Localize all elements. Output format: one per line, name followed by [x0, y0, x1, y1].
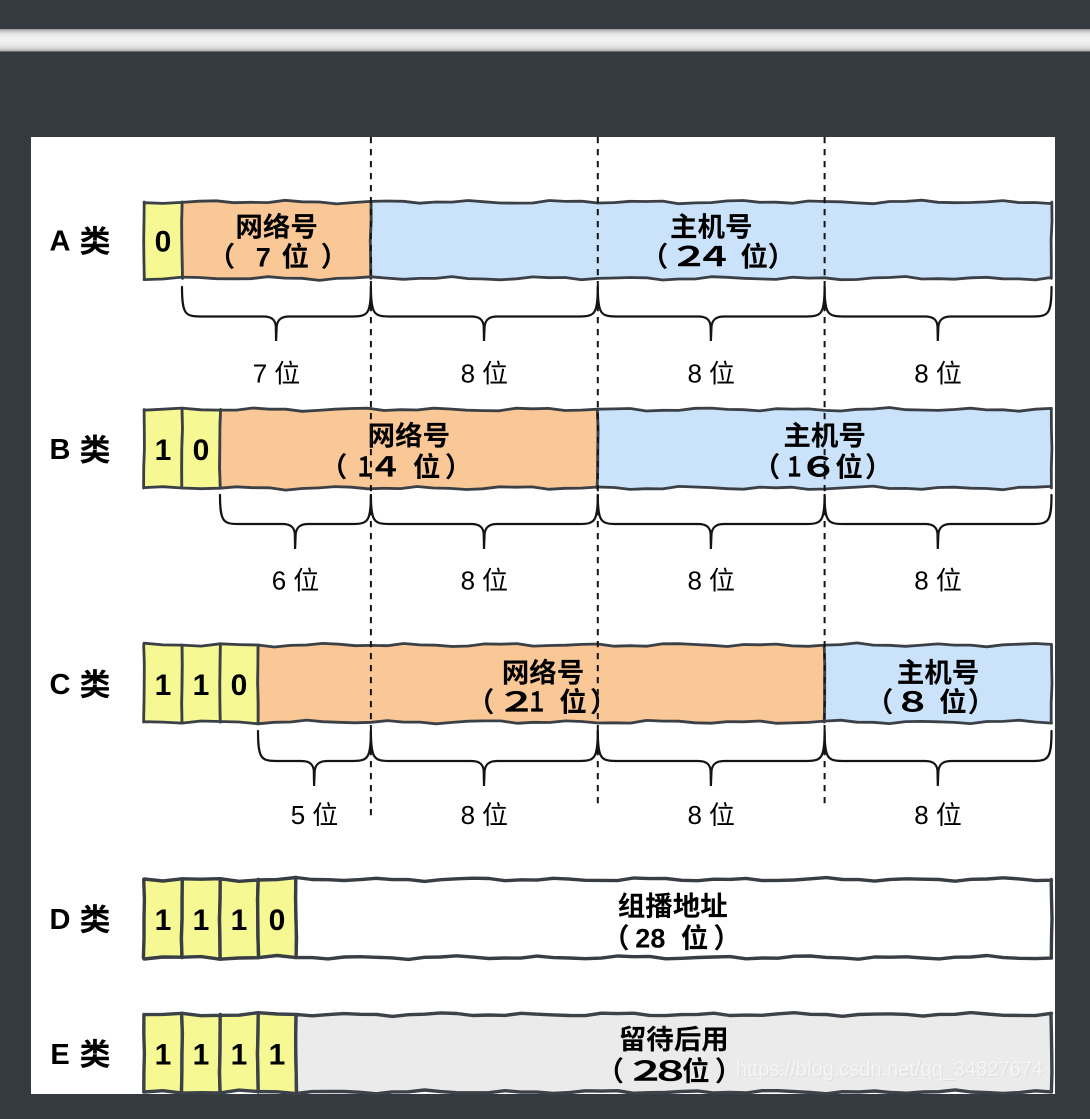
svg-text:8: 8	[461, 359, 475, 389]
svg-text:1: 1	[155, 434, 172, 467]
svg-text:0: 0	[155, 226, 172, 259]
svg-text:8: 8	[914, 800, 928, 830]
svg-text:B: B	[50, 434, 71, 466]
svg-text:28: 28	[635, 924, 665, 954]
svg-text:1: 1	[269, 1039, 286, 1072]
svg-text:D: D	[50, 904, 71, 936]
svg-text:7: 7	[256, 242, 271, 272]
svg-text:1: 1	[231, 1039, 248, 1072]
svg-text:5: 5	[291, 800, 305, 830]
svg-text:0: 0	[193, 434, 210, 467]
svg-text:1: 1	[155, 1039, 172, 1072]
svg-text:1: 1	[193, 1039, 210, 1072]
svg-text:1: 1	[193, 904, 210, 937]
svg-text:0: 0	[231, 669, 248, 702]
svg-text:6: 6	[272, 566, 286, 596]
svg-text:8: 8	[914, 566, 928, 596]
svg-text:1: 1	[155, 904, 172, 937]
svg-text:https://blog.csdn.net/qq_34827: https://blog.csdn.net/qq_34827674	[736, 1058, 1043, 1081]
svg-text:8: 8	[688, 800, 702, 830]
svg-text:8: 8	[461, 566, 475, 596]
svg-text:8: 8	[688, 359, 702, 389]
svg-text:1: 1	[231, 904, 248, 937]
svg-text:8: 8	[461, 800, 475, 830]
svg-text:1: 1	[155, 669, 172, 702]
svg-text:0: 0	[269, 904, 286, 937]
svg-text:E: E	[50, 1039, 69, 1071]
svg-text:C: C	[50, 669, 71, 701]
svg-text:8: 8	[688, 566, 702, 596]
svg-text:8: 8	[914, 359, 928, 389]
svg-text:7: 7	[253, 359, 267, 389]
svg-text:1: 1	[193, 669, 210, 702]
svg-text:A: A	[50, 226, 71, 258]
